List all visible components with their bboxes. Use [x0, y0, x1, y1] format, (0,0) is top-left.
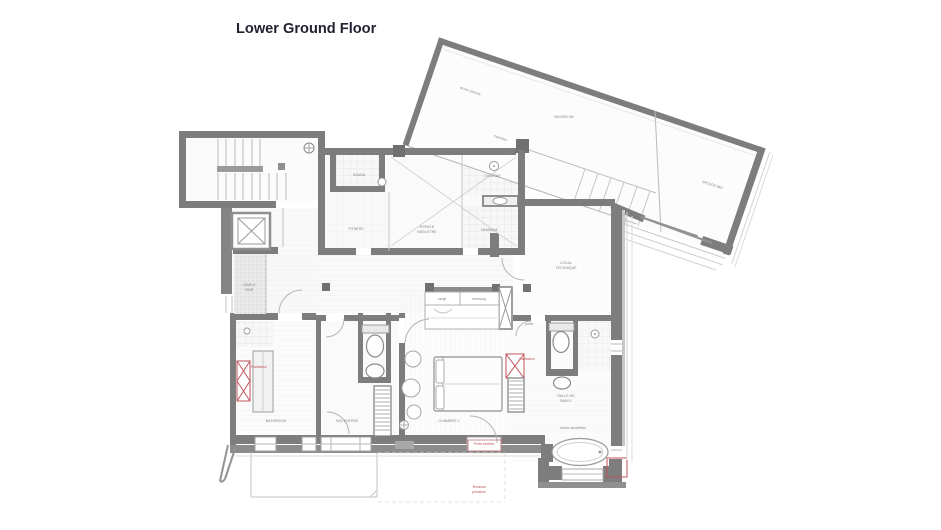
svg-text:SALLE DE: SALLE DE	[557, 394, 575, 398]
svg-text:seche-serviettes: seche-serviettes	[560, 426, 586, 430]
svg-text:BIEN-ETRE: BIEN-ETRE	[417, 230, 437, 234]
svg-text:BAIN 1: BAIN 1	[560, 399, 571, 403]
svg-text:BATHROOM: BATHROOM	[266, 419, 287, 423]
svg-text:dressing: dressing	[472, 297, 486, 301]
svg-text:HAMMAM: HAMMAM	[481, 228, 497, 232]
svg-text:BASSIN 3M: BASSIN 3M	[554, 115, 573, 119]
svg-text:privative: privative	[472, 490, 485, 494]
svg-text:Porte fenêtre: Porte fenêtre	[474, 442, 495, 446]
svg-text:Lower Ground Floor: Lower Ground Floor	[236, 21, 377, 37]
svg-text:ESPACE: ESPACE	[420, 225, 435, 229]
svg-text:Radiateur: Radiateur	[251, 365, 267, 369]
svg-text:LOCAL: LOCAL	[560, 261, 572, 265]
svg-text:SAS ENTREE: SAS ENTREE	[336, 419, 359, 423]
svg-text:Terrasse: Terrasse	[472, 485, 486, 489]
svg-text:TECHNIQUE: TECHNIQUE	[555, 266, 577, 270]
svg-text:VINS: VINS	[245, 288, 254, 292]
svg-text:DOUCHE: DOUCHE	[485, 174, 501, 178]
svg-text:FITNESS: FITNESS	[348, 227, 364, 231]
svg-text:porte: porte	[525, 322, 533, 326]
svg-text:SAUNA: SAUNA	[353, 173, 366, 177]
svg-text:CAVE A: CAVE A	[243, 283, 256, 287]
svg-text:rangt: rangt	[438, 297, 446, 301]
svg-text:Radiateur: Radiateur	[519, 357, 535, 361]
svg-text:CHAMBRE 1: CHAMBRE 1	[439, 419, 460, 423]
